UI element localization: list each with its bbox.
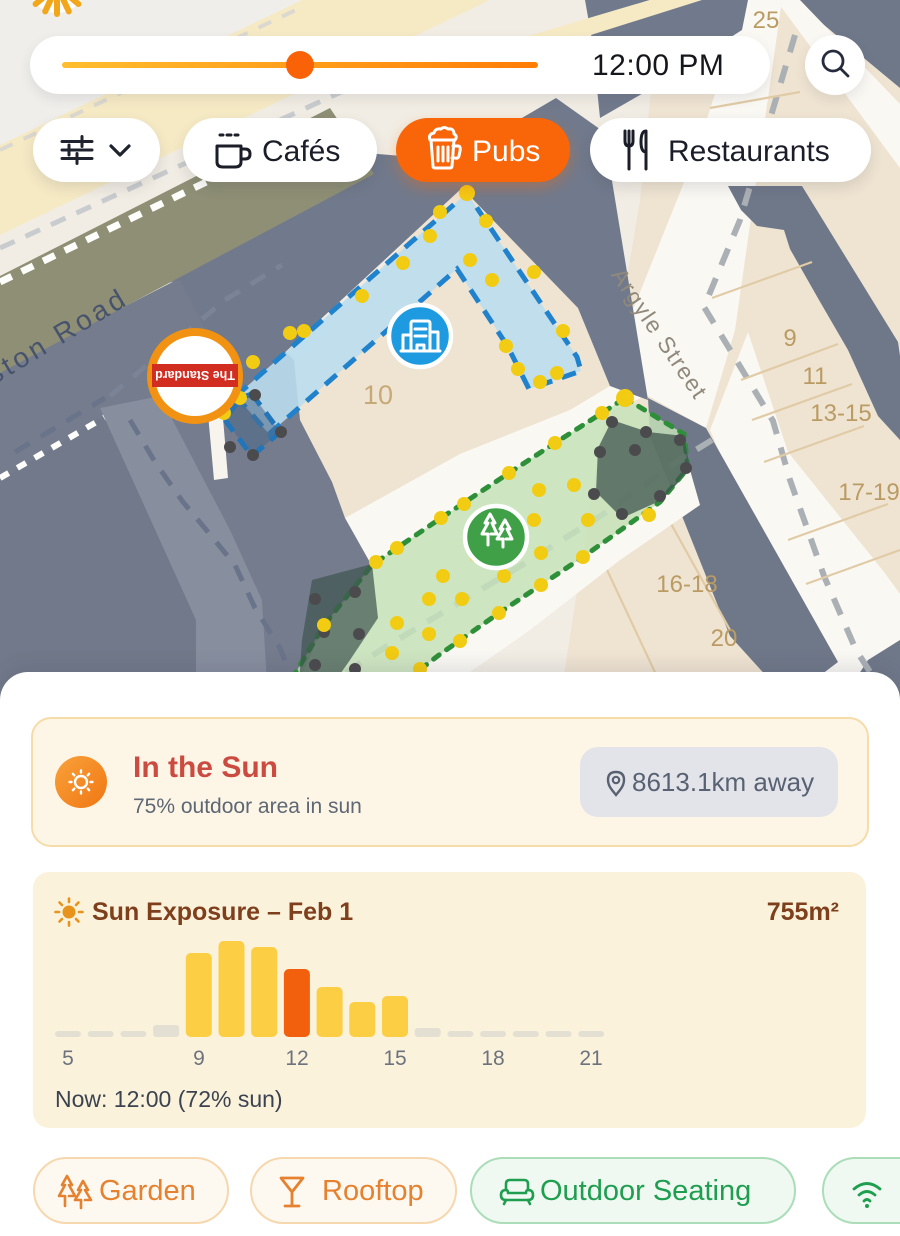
svg-text:20: 20 xyxy=(711,625,738,652)
svg-text:16-18: 16-18 xyxy=(656,571,717,598)
svg-text:17-19: 17-19 xyxy=(838,479,899,506)
svg-text:25: 25 xyxy=(753,7,780,34)
svg-text:10: 10 xyxy=(363,380,393,410)
svg-text:9: 9 xyxy=(783,325,796,352)
svg-text:The Standard: The Standard xyxy=(155,368,235,382)
svg-text:13-15: 13-15 xyxy=(810,400,871,427)
svg-text:11: 11 xyxy=(803,363,828,390)
